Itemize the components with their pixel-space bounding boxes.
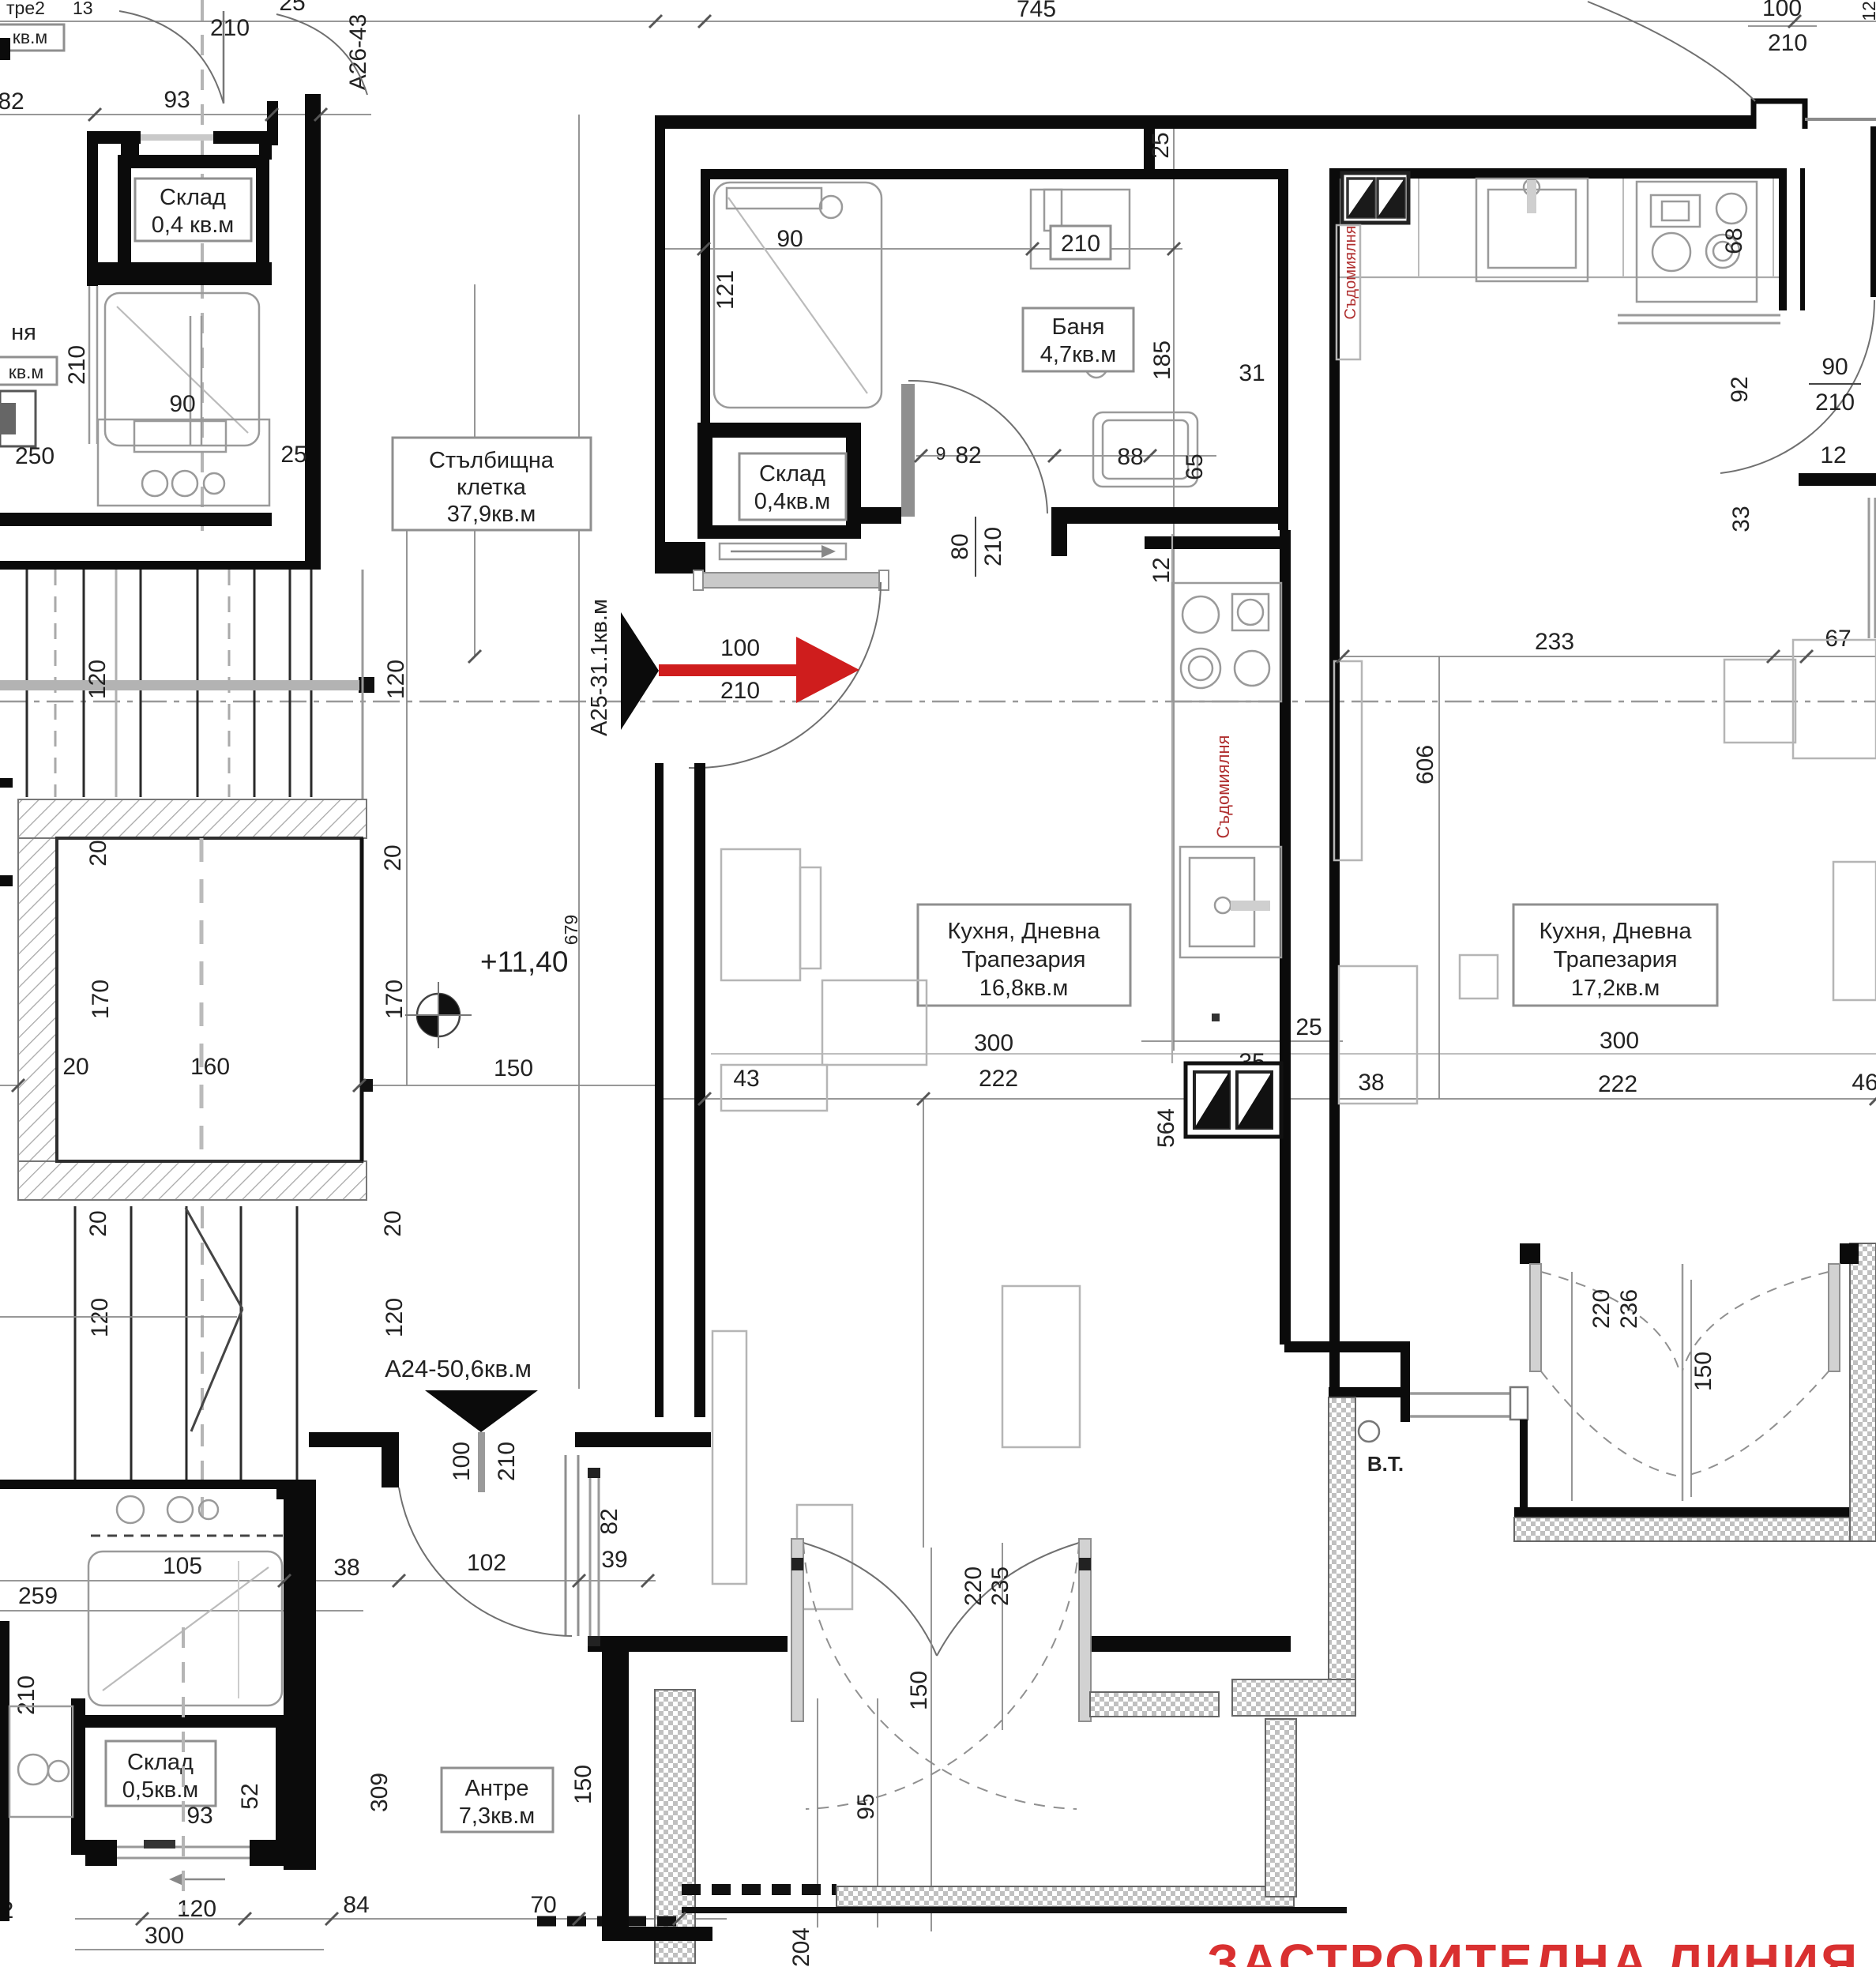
svg-text:88: 88 [1117, 444, 1143, 470]
svg-text:Кухня, Дневна: Кухня, Дневна [947, 919, 1100, 944]
svg-text:Кухня, Дневна: Кухня, Дневна [1539, 919, 1692, 944]
svg-text:606: 606 [1412, 745, 1438, 784]
svg-text:185: 185 [1149, 340, 1175, 380]
svg-text:210: 210 [980, 527, 1006, 566]
svg-text:210: 210 [13, 1676, 39, 1715]
svg-text:38: 38 [1358, 1070, 1384, 1096]
svg-text:+11,40: +11,40 [480, 946, 568, 978]
svg-text:37,9кв.м: 37,9кв.м [447, 502, 536, 527]
svg-text:Съдомиялня: Съдомиялня [1342, 225, 1359, 319]
svg-text:39: 39 [601, 1547, 627, 1573]
svg-text:93: 93 [164, 87, 190, 113]
svg-text:170: 170 [88, 980, 114, 1019]
svg-text:12: 12 [1820, 442, 1846, 468]
svg-text:300: 300 [974, 1030, 1013, 1056]
svg-text:25: 25 [280, 442, 306, 468]
svg-text:170: 170 [382, 980, 408, 1019]
svg-text:210: 210 [1768, 30, 1807, 56]
svg-text:210: 210 [64, 345, 90, 385]
svg-text:210: 210 [494, 1442, 520, 1481]
svg-text:кв.м: кв.м [13, 27, 47, 47]
svg-text:Трапезария: Трапезария [962, 947, 1086, 972]
svg-text:90: 90 [1821, 354, 1848, 380]
svg-text:Баня: Баня [1052, 314, 1105, 340]
svg-text:0,4кв.м: 0,4кв.м [754, 489, 830, 514]
svg-text:80: 80 [947, 533, 973, 559]
svg-text:309: 309 [367, 1773, 393, 1812]
svg-text:17,2кв.м: 17,2кв.м [1571, 976, 1660, 1001]
svg-text:100: 100 [449, 1442, 475, 1481]
svg-text:25: 25 [1295, 1014, 1321, 1040]
svg-text:ЗАСТРОИТЕЛНА ЛИНИЯ: ЗАСТРОИТЕЛНА ЛИНИЯ [1207, 1934, 1859, 1967]
svg-text:Антре: Антре [465, 1776, 529, 1801]
svg-text:Стълбищна: Стълбищна [429, 448, 555, 473]
svg-text:210: 210 [1061, 231, 1100, 257]
svg-text:210: 210 [210, 15, 250, 41]
svg-text:68: 68 [1721, 228, 1747, 254]
svg-text:20: 20 [62, 1054, 88, 1080]
svg-text:220: 220 [1588, 1289, 1615, 1329]
svg-text:236: 236 [1616, 1289, 1642, 1329]
svg-text:20: 20 [380, 1210, 406, 1236]
svg-text:кв.м: кв.м [9, 362, 43, 382]
svg-text:120: 120 [87, 1298, 113, 1337]
svg-text:210: 210 [1815, 389, 1855, 416]
svg-text:93: 93 [186, 1803, 212, 1829]
svg-text:25: 25 [279, 0, 305, 16]
svg-text:20: 20 [85, 1210, 111, 1236]
svg-text:564: 564 [1153, 1108, 1179, 1148]
svg-text:222: 222 [979, 1066, 1018, 1092]
svg-text:А25-31.1кв.м: А25-31.1кв.м [587, 599, 612, 736]
svg-text:9: 9 [936, 443, 946, 464]
svg-text:Трапезария: Трапезария [1554, 947, 1678, 972]
svg-text:52: 52 [237, 1783, 263, 1809]
svg-text:Склад: Склад [759, 461, 825, 487]
svg-text:120: 120 [383, 660, 409, 699]
svg-text:16,8кв.м: 16,8кв.м [979, 976, 1069, 1001]
svg-text:65: 65 [1182, 453, 1208, 480]
svg-text:4,7кв.м: 4,7кв.м [1040, 342, 1116, 367]
svg-text:300: 300 [145, 1923, 184, 1949]
svg-text:100: 100 [720, 635, 760, 661]
svg-text:150: 150 [570, 1765, 596, 1804]
svg-text:120: 120 [85, 660, 111, 699]
svg-text:ня: ня [11, 320, 36, 345]
svg-text:33: 33 [1728, 506, 1754, 532]
svg-text:84: 84 [343, 1892, 369, 1918]
svg-text:220: 220 [961, 1566, 987, 1606]
svg-text:82: 82 [0, 88, 24, 115]
svg-text:70: 70 [530, 1892, 556, 1918]
svg-text:121: 121 [712, 270, 739, 310]
svg-text:150: 150 [494, 1055, 533, 1081]
svg-text:92: 92 [1727, 376, 1753, 402]
svg-text:150: 150 [1690, 1352, 1716, 1391]
svg-text:31: 31 [1239, 360, 1265, 386]
svg-text:90: 90 [169, 391, 195, 417]
svg-text:38: 38 [333, 1555, 359, 1581]
svg-text:А24-50,6кв.м: А24-50,6кв.м [385, 1355, 532, 1382]
svg-text:тре2: тре2 [6, 0, 45, 18]
svg-text:25: 25 [1148, 132, 1174, 158]
svg-text:0,5кв.м: 0,5кв.м [122, 1777, 198, 1803]
svg-text:Склад: Склад [160, 185, 226, 210]
svg-text:67: 67 [1825, 626, 1851, 652]
svg-text:7,3кв.м: 7,3кв.м [459, 1803, 535, 1829]
svg-text:250: 250 [15, 443, 55, 469]
svg-text:90: 90 [776, 226, 803, 252]
svg-text:102: 102 [467, 1550, 506, 1576]
svg-text:82: 82 [955, 442, 981, 468]
svg-text:А26-43: А26-43 [345, 14, 371, 91]
svg-text:259: 259 [18, 1583, 58, 1609]
svg-text:95: 95 [853, 1793, 879, 1819]
svg-text:43: 43 [733, 1066, 759, 1092]
svg-text:12: 12 [1859, 1, 1876, 21]
svg-text:0,4 кв.м: 0,4 кв.м [152, 212, 234, 238]
svg-text:150: 150 [906, 1671, 932, 1710]
svg-text:20: 20 [85, 840, 111, 866]
svg-text:13: 13 [73, 0, 93, 18]
svg-text:105: 105 [163, 1553, 202, 1579]
svg-text:679: 679 [561, 915, 581, 945]
svg-text:В.Т.: В.Т. [1367, 1452, 1404, 1476]
svg-text:300: 300 [1600, 1028, 1639, 1054]
svg-text:745: 745 [1017, 0, 1056, 22]
svg-text:160: 160 [190, 1054, 230, 1080]
svg-text:клетка: клетка [457, 475, 527, 500]
svg-text:120: 120 [382, 1298, 408, 1337]
svg-text:82: 82 [596, 1508, 622, 1534]
svg-text:100: 100 [1762, 0, 1802, 21]
svg-text:222: 222 [1598, 1071, 1637, 1097]
svg-text:46: 46 [1852, 1070, 1876, 1096]
svg-text:210: 210 [720, 678, 760, 704]
svg-text:233: 233 [1535, 629, 1574, 655]
svg-text:12: 12 [1149, 557, 1175, 583]
svg-text:20: 20 [380, 844, 406, 871]
svg-text:204: 204 [788, 1928, 814, 1967]
svg-text:235: 235 [987, 1566, 1013, 1606]
svg-text:Съдомиялня: Съдомиялня [1213, 735, 1233, 839]
